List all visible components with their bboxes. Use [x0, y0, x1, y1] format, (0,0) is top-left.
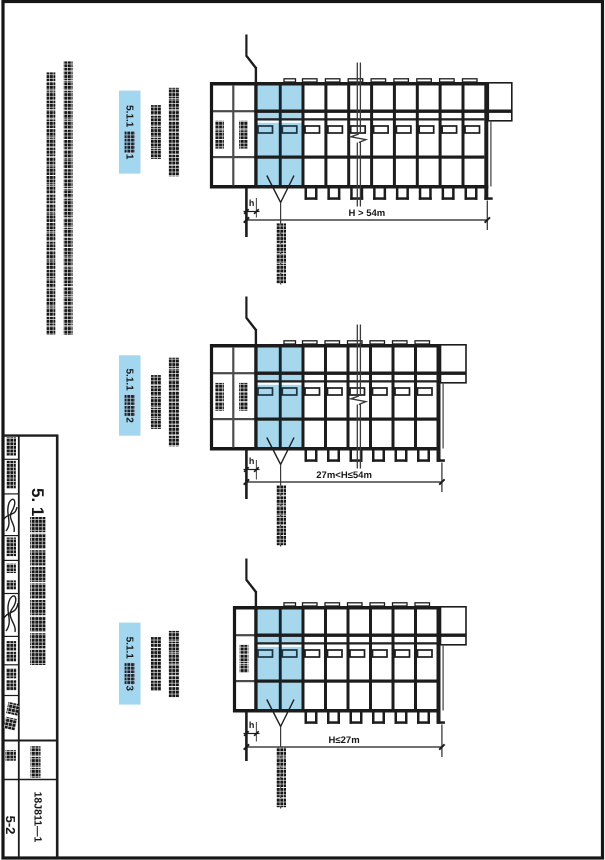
svg-text:1: 1: [123, 154, 134, 160]
svg-text:27m<H≤54m: 27m<H≤54m: [316, 470, 372, 481]
svg-text:5.1.1: 5.1.1: [123, 637, 134, 660]
svg-text:18J811—1: 18J811—1: [31, 792, 43, 843]
svg-text:h: h: [249, 720, 255, 730]
svg-text:H≤27m: H≤27m: [329, 735, 360, 746]
svg-text:5.1.1: 5.1.1: [123, 105, 134, 128]
svg-text:h: h: [249, 198, 255, 208]
svg-text:H > 54m: H > 54m: [349, 208, 386, 219]
svg-text:5-2: 5-2: [3, 816, 18, 835]
svg-text:5. 1: 5. 1: [28, 488, 47, 516]
svg-text:h: h: [249, 456, 255, 466]
svg-text:3: 3: [123, 685, 134, 691]
svg-text:5.1.1: 5.1.1: [123, 369, 134, 392]
svg-text:2: 2: [123, 417, 134, 423]
